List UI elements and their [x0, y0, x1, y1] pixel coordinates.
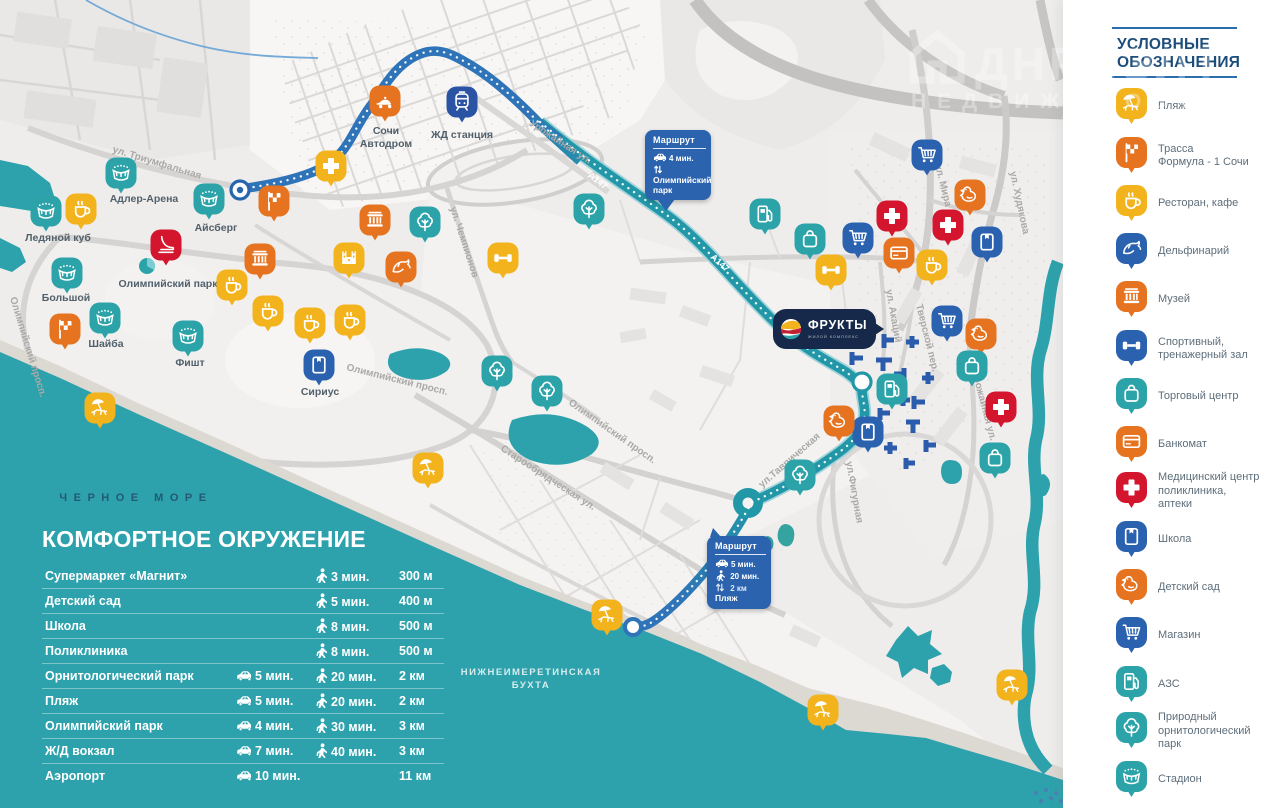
svg-text:Ледяной куб: Ледяной куб [25, 232, 91, 244]
svg-text:БУХТА: БУХТА [512, 680, 550, 691]
svg-text:ЖД станция: ЖД станция [430, 129, 493, 141]
svg-text:Адлер-Арена: Адлер-Арена [110, 193, 179, 205]
svg-text:Сочи: Сочи [373, 125, 399, 137]
svg-text:Сириус: Сириус [301, 386, 339, 398]
svg-text:Олимпийский парк: Олимпийский парк [119, 278, 219, 290]
svg-text:Фишт: Фишт [175, 357, 204, 369]
svg-text:Автодром: Автодром [360, 138, 413, 150]
svg-text:Большой: Большой [42, 292, 90, 304]
svg-text:НИЖНЕИМЕРЕТИНСКАЯ: НИЖНЕИМЕРЕТИНСКАЯ [461, 667, 602, 678]
svg-text:ЧЕРНОЕ МОРЕ: ЧЕРНОЕ МОРЕ [59, 492, 212, 504]
svg-text:Айсберг: Айсберг [195, 222, 238, 234]
svg-text:Шайба: Шайба [88, 338, 123, 350]
